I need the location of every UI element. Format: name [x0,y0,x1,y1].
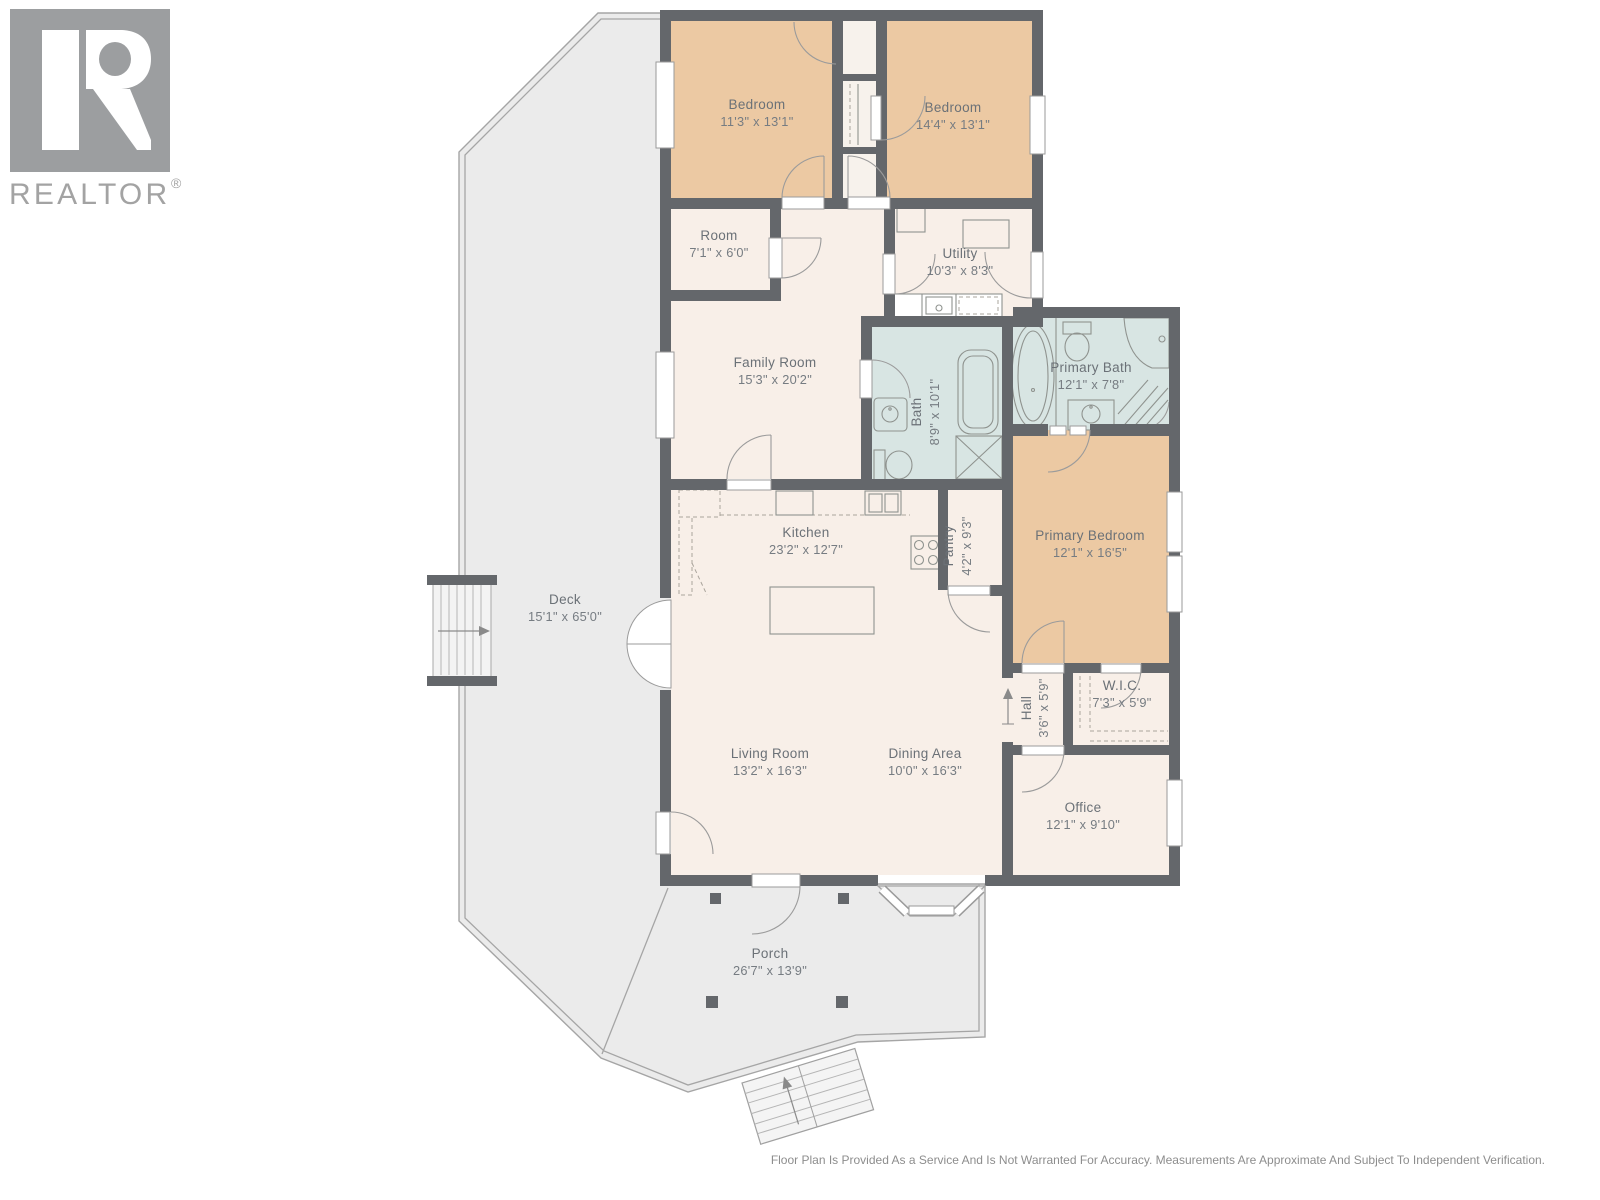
svg-text:Bath: Bath [909,398,924,427]
svg-text:11'3" x 13'1": 11'3" x 13'1" [720,114,793,129]
svg-text:Primary Bath: Primary Bath [1050,360,1132,375]
svg-text:13'2" x 16'3": 13'2" x 16'3" [733,763,807,778]
floor-plan-page: Bedroom 11'3" x 13'1" Bedroom 14'4" x 13… [0,0,1600,1200]
svg-text:Pantry: Pantry [941,526,956,567]
svg-text:Deck: Deck [549,592,581,607]
floor-plan-drawing: Bedroom 11'3" x 13'1" Bedroom 14'4" x 13… [0,0,1600,1200]
svg-text:8'9" x 10'1": 8'9" x 10'1" [927,379,942,446]
deck-stairs-icon [427,575,497,686]
svg-text:Family Room: Family Room [734,355,817,370]
svg-text:Kitchen: Kitchen [782,525,829,540]
svg-text:Porch: Porch [752,946,789,961]
window [1030,96,1045,154]
svg-text:4'2" x 9'3": 4'2" x 9'3" [959,516,974,575]
window [1167,780,1182,846]
window [1167,556,1182,612]
svg-text:7'3" x 5'9": 7'3" x 5'9" [1092,695,1151,710]
porch-post [710,893,721,904]
porch-post [706,996,718,1008]
svg-text:Hall: Hall [1019,696,1034,720]
svg-text:15'3" x 20'2": 15'3" x 20'2" [738,372,812,387]
disclaimer-text: Floor Plan Is Provided As a Service And … [771,1153,1545,1167]
svg-text:12'1" x 16'5": 12'1" x 16'5" [1053,545,1127,560]
svg-text:23'2" x 12'7": 23'2" x 12'7" [769,542,843,557]
svg-text:W.I.C.: W.I.C. [1103,678,1142,693]
svg-text:Office: Office [1065,800,1102,815]
svg-text:Bedroom: Bedroom [925,100,982,115]
svg-text:Primary Bedroom: Primary Bedroom [1035,528,1145,543]
registered-mark: ® [171,175,182,191]
realtor-wordmark: REALTOR [9,178,170,211]
svg-text:10'0" x 16'3": 10'0" x 16'3" [888,763,962,778]
svg-text:Utility: Utility [942,246,977,261]
svg-text:12'1" x 9'10": 12'1" x 9'10" [1046,817,1120,832]
svg-text:Room: Room [700,228,737,243]
svg-text:3'6" x 5'9": 3'6" x 5'9" [1036,678,1051,737]
svg-text:7'1" x 6'0": 7'1" x 6'0" [689,245,748,260]
svg-text:12'1" x 7'8": 12'1" x 7'8" [1058,377,1125,392]
svg-text:Dining Area: Dining Area [888,746,961,761]
svg-text:10'3" x 8'3": 10'3" x 8'3" [927,263,994,278]
office-floor [1013,755,1169,875]
porch-post [836,996,848,1008]
window [1167,492,1182,552]
svg-text:26'7" x 13'9": 26'7" x 13'9" [733,963,807,978]
window [656,62,674,148]
realtor-logo: REALTOR ® [9,9,182,211]
svg-text:14'4" x 13'1": 14'4" x 13'1" [916,117,990,132]
svg-text:Living Room: Living Room [731,746,809,761]
window [656,352,674,438]
svg-text:Bedroom: Bedroom [729,97,786,112]
porch-post [838,893,849,904]
svg-text:15'1" x 65'0": 15'1" x 65'0" [528,609,602,624]
